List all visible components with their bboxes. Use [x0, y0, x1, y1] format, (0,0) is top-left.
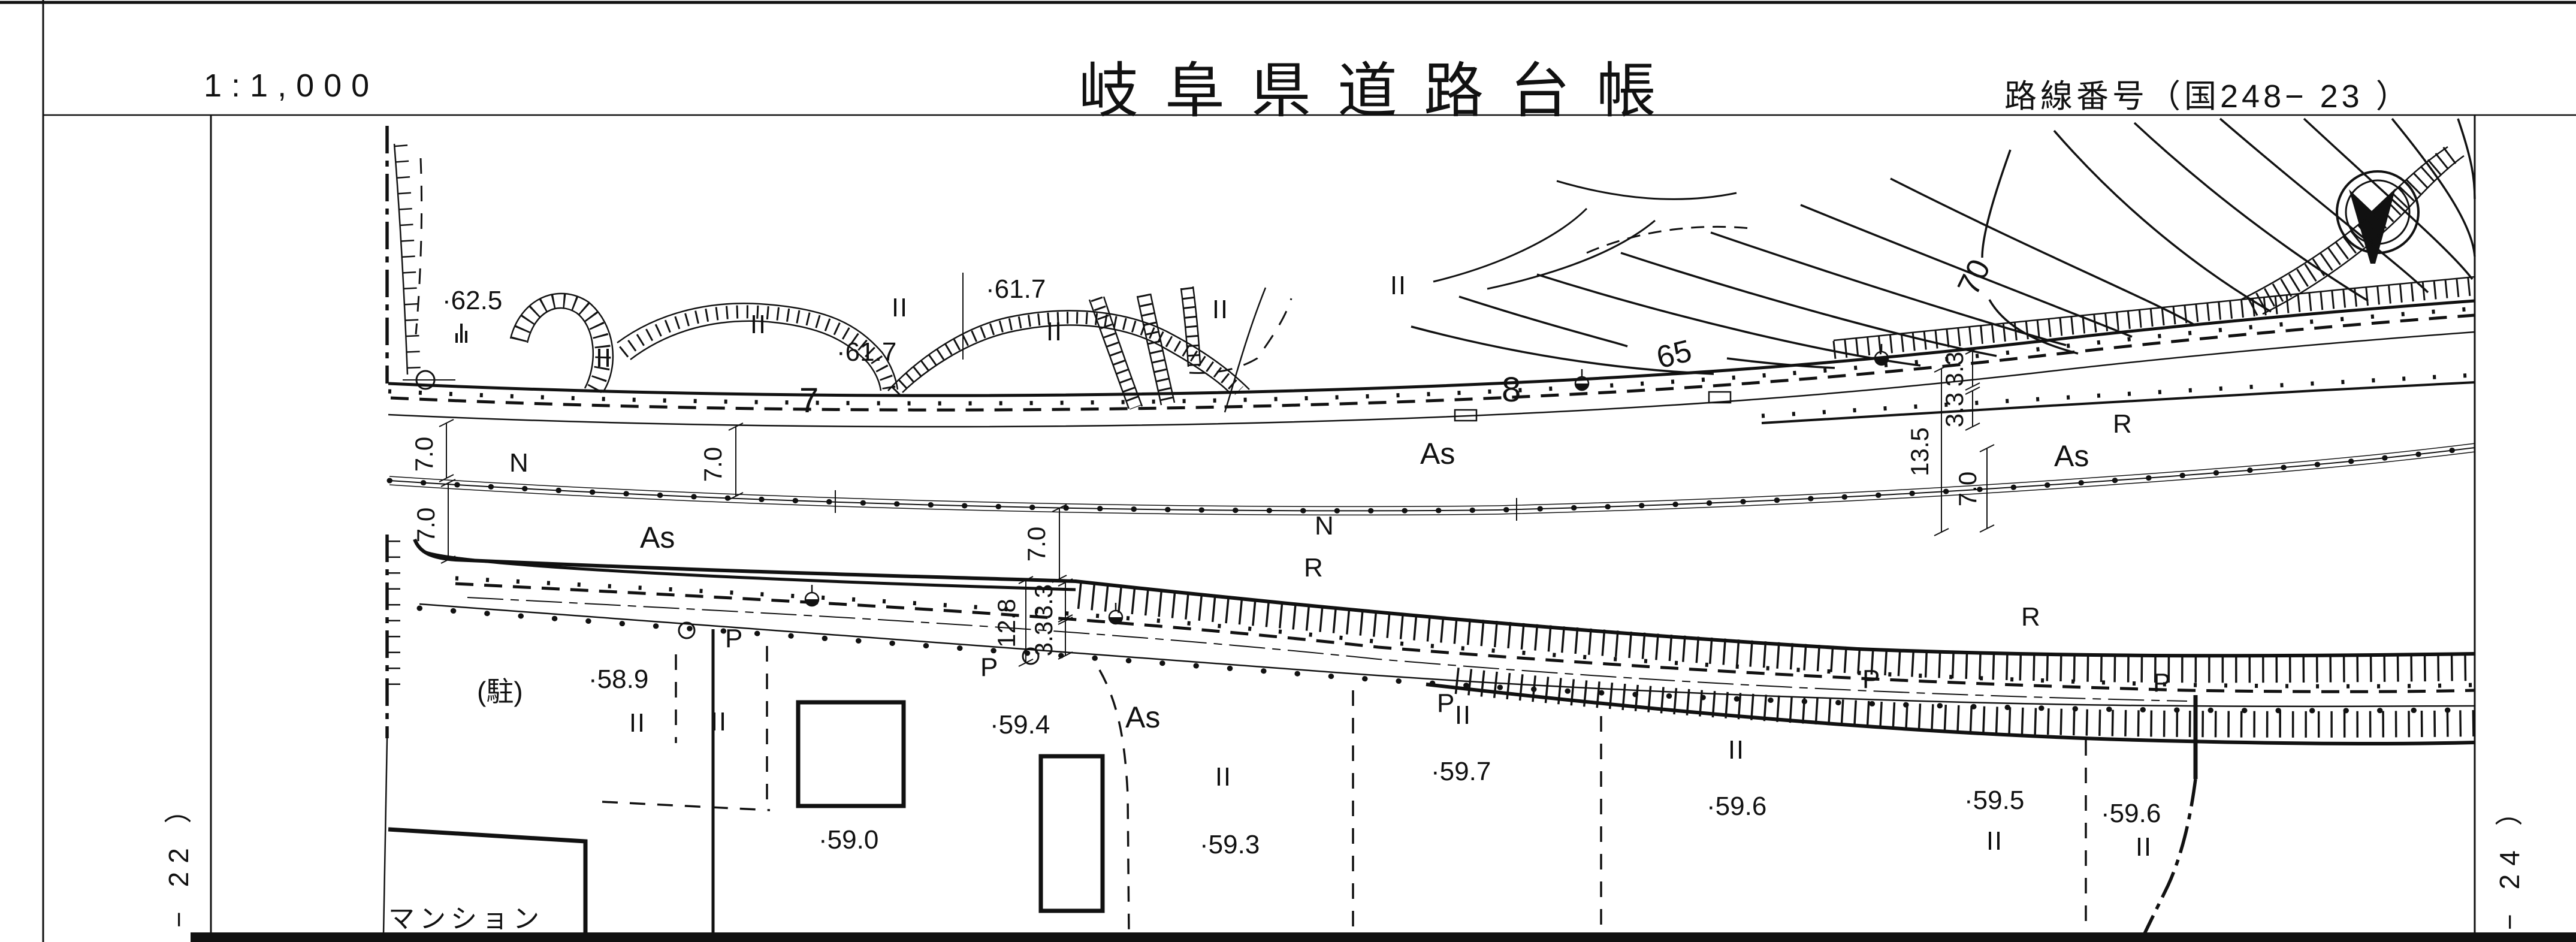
map-label-spot-61-7-a: ·61.7 — [986, 274, 1046, 304]
utility-pole-icon — [805, 585, 819, 606]
map-label-fence-p-3: P — [1437, 689, 1454, 718]
map-label-spot-59-4: ·59.4 — [990, 710, 1050, 739]
map-label-spot-62-5: ·62.5 — [442, 286, 502, 315]
field-symbol — [1394, 276, 1402, 294]
map-label-parking: (駐) — [477, 676, 523, 707]
map-label-spot-59-5: ·59.5 — [1964, 786, 2024, 815]
map-label-spot-58-9: ·58.9 — [588, 665, 648, 694]
manhole-icon — [679, 623, 694, 638]
map-label-surface-as-3: As — [2054, 439, 2089, 473]
map-label-surface-as-2: As — [1420, 437, 1455, 470]
field-symbol — [1990, 832, 1998, 850]
main-road — [388, 301, 2475, 521]
map-label-dim-3-3-b: 3.3 — [1029, 621, 1058, 656]
map-label-wall-r-1: R — [1304, 553, 1323, 582]
map-label-spot-59-7: ·59.7 — [1431, 757, 1491, 786]
route-number: 路線番号（国248− 23 ） — [2004, 70, 2412, 117]
map-symbols — [457, 276, 2148, 856]
map-label-fence-p-1: P — [725, 624, 742, 653]
map-label-spot-59-3: ·59.3 — [1200, 830, 1260, 859]
map-label-surface-as-1: As — [640, 521, 675, 554]
map-label-spot-61-7-b: ·61.7 — [836, 337, 896, 367]
map-label-fence-n-2: N — [1315, 511, 1334, 541]
map-label-dim-7-0-d: 7.0 — [1022, 527, 1050, 561]
map-label-dim-12-8: 12.8 — [992, 599, 1020, 648]
map-label-dim-7-0-a: 7.0 — [410, 437, 438, 472]
map-label-surface-as-4: As — [1125, 701, 1160, 734]
map-label-dim-7-0-e: 7.0 — [1953, 472, 1982, 506]
map-label-contour-65: 65 — [1653, 333, 1695, 375]
map-label-spot-59-0: ·59.0 — [819, 825, 878, 855]
field-symbol — [2139, 838, 2148, 856]
adjacent-sheet-left: − 22 ） — [157, 787, 197, 928]
map-label-dim-7-0-c: 7.0 — [699, 447, 727, 482]
map-label-contour-70: 70 — [1951, 254, 1997, 300]
map-label-mansion: マンション — [388, 904, 544, 934]
grass-symbol — [457, 324, 466, 343]
map-label-fence-p-5: P — [2153, 668, 2170, 698]
map-label-wall-r-2: R — [2113, 409, 2132, 439]
map-label-spot-59-6-b: ·59.6 — [2101, 799, 2161, 828]
road-ledger-sheet: 1:1,000 岐阜県道路台帳 路線番号（国248− 23 ） − 22 ） −… — [0, 0, 2576, 942]
sheet-title: 岐阜県道路台帳 — [1079, 42, 1683, 129]
map-label-km-post-8: 8 — [1502, 370, 1521, 409]
map-label-dim-7-0-b: 7.0 — [412, 508, 440, 542]
map-label-dim-3-3-a: 3.3 — [1029, 584, 1058, 619]
map-label-dim-3-3-c: 3.3 — [1940, 352, 1968, 387]
map-scale: 1:1,000 — [204, 67, 379, 104]
map-label-km-post-7: 7 — [799, 381, 819, 420]
map-label-fence-p-2: P — [980, 653, 998, 682]
utility-pole-icon — [1875, 344, 1888, 365]
field-symbol — [714, 712, 723, 730]
field-symbol — [1732, 741, 1740, 759]
adjacent-sheet-right: − 24 ） — [2488, 790, 2527, 930]
field-symbol — [633, 714, 641, 732]
parcels-south — [383, 535, 2196, 935]
map-label-dim-13-5: 13.5 — [1905, 427, 1934, 476]
map-label-fence-n-1: N — [509, 448, 529, 478]
map-canvas: ·62.5·61.7·61.7·58.9·59.0·59.4·59.3·59.7… — [0, 0, 2576, 942]
dimension-lines — [439, 347, 1994, 666]
map-label-dim-3-3-d: 3.3 — [1940, 393, 1968, 427]
field-symbol — [1219, 768, 1227, 786]
map-label-spot-59-6-a: ·59.6 — [1707, 792, 1766, 821]
field-symbol — [895, 298, 904, 316]
map-label-wall-r-3: R — [2021, 602, 2040, 632]
field-symbol — [1458, 706, 1467, 724]
map-label-fence-p-4: P — [1862, 665, 1880, 694]
contour-lines — [1411, 119, 2475, 374]
terrain-upper-left — [387, 126, 1291, 412]
field-symbol — [1216, 300, 1224, 318]
